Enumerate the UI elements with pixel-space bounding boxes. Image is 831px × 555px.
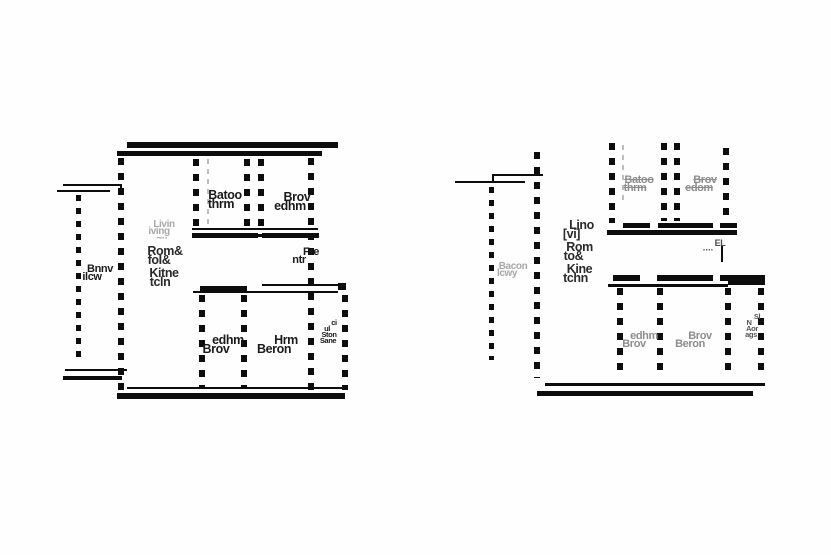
room-label-living-kitchen: Lino [vi] Rom to& Kine tchn [550,221,605,282]
balcony-line [120,184,122,192]
room-label-bathroom: Batoo thrm [203,191,243,208]
room-label-bedroom-bottom-right: Brov Beron [666,333,718,348]
wall-segment [117,393,345,399]
wall-segment [117,151,322,156]
room-label-balcony: Bacon lcwy [491,263,529,277]
wall-segment [192,233,258,238]
balcony-line [63,376,122,380]
wall-dashed [661,143,667,221]
wall-segment [613,275,640,281]
room-label-bathroom: Batoo thrm [616,177,658,192]
wall-segment [338,283,346,290]
room-label-bedroom-top: Brov edom [680,177,722,192]
wall-segment [720,223,737,228]
wall-segment [262,233,319,238]
balcony-line [492,174,494,183]
room-label-bedroom-bottom-right: Hrm Beron [250,336,302,353]
room-label-bedroom-bottom-left: edhm Brov [200,336,244,353]
wall-dashed [609,143,615,223]
wall-segment [192,228,318,230]
wall-segment [657,275,713,281]
wall-segment [545,383,765,386]
wall-segment [193,291,338,293]
room-label-living-kitchen: Livin iving ~·· Rom& foI& Kitne tcln [136,221,188,286]
wall-dashed [258,159,264,237]
wall-dashed [534,152,540,378]
floor-plan-canvas: Batoo thrm Brov edhm Livin iving ~·· Rom… [0,0,831,555]
wall-segment [127,142,338,148]
wall-dashed [118,158,124,396]
wall-dashed [723,148,729,228]
wall-segment [537,391,753,396]
room-label-entry: Fre ntr [288,249,318,264]
room-label-bedroom-top: Brov edhm [272,193,312,210]
wall-segment [608,284,728,287]
room-label-storage: Sl N Aor ags [740,314,764,338]
wall-segment [607,230,737,235]
room-label-entry: EL ···· [698,240,726,253]
balcony-line [492,174,543,176]
balcony-line [455,181,525,183]
room-label-balcony: Bnnv ilcw [76,266,116,281]
balcony-line [65,369,127,371]
balcony-line [57,190,110,192]
room-label-storage: ci ul Ston Sane [316,320,342,344]
wall-segment [658,223,713,228]
wall-segment [127,387,345,389]
room-label-bedroom-bottom-left: edhm Brov [618,333,660,348]
wall-segment [623,223,650,228]
wall-segment [262,284,346,286]
balcony-line [63,184,122,186]
wall-dashed [193,159,199,235]
wall-segment [728,281,765,285]
wall-dashed [342,295,348,390]
